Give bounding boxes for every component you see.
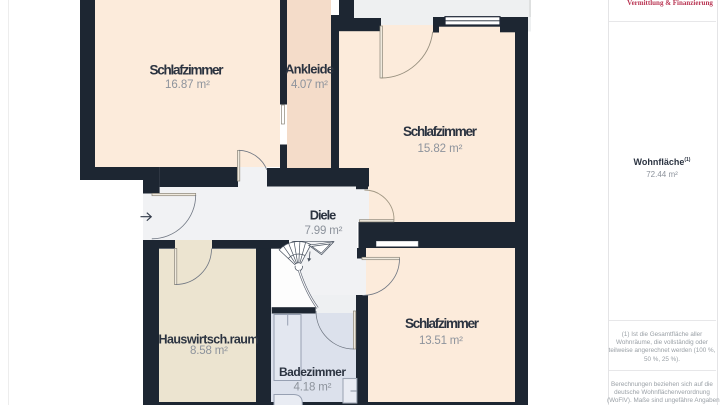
svg-text:4.18 m²: 4.18 m² [294, 382, 332, 394]
svg-text:13.51 m²: 13.51 m² [419, 335, 463, 347]
svg-text:Badezimmer: Badezimmer [279, 365, 346, 379]
svg-text:7.99 m²: 7.99 m² [305, 225, 343, 237]
svg-text:Schlafzimmer: Schlafzimmer [405, 316, 480, 331]
svg-text:16.87 m²: 16.87 m² [165, 79, 210, 91]
svg-text:Schlafzimmer: Schlafzimmer [150, 63, 225, 78]
svg-text:Schlafzimmer: Schlafzimmer [403, 124, 478, 139]
svg-text:4.07 m²: 4.07 m² [291, 79, 328, 91]
svg-text:15.82 m²: 15.82 m² [418, 143, 463, 155]
svg-text:Ankleide: Ankleide [285, 62, 334, 77]
svg-text:8.58 m²: 8.58 m² [190, 345, 228, 357]
svg-text:Diele: Diele [310, 207, 337, 222]
